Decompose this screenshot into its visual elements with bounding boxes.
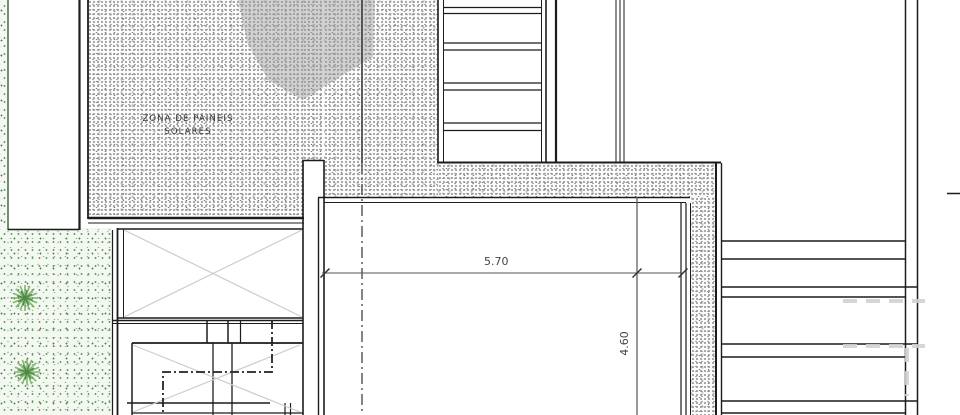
- garden-left-strip: [0, 0, 7, 228]
- site-boundary-lines: [8, 0, 80, 230]
- pool-room-walls: [318, 163, 722, 415]
- dimension-460-label: 4.60: [618, 331, 631, 356]
- gravel-roof-notch-top: [303, 0, 324, 160]
- garden-building-wall: [113, 228, 124, 415]
- solar-zone-label-line2: SOLARES: [118, 127, 258, 137]
- right-boundary-and-steps: [722, 0, 960, 415]
- stair-break-line: [163, 320, 272, 415]
- dimension-570-label: 5.70: [484, 255, 509, 268]
- void-box: [118, 229, 303, 318]
- upper-partition-walls: [556, 0, 624, 162]
- gravel-parapet-band: [438, 164, 716, 197]
- garden-area: [0, 228, 112, 415]
- floor-plan-canvas: ZONA DE PAINEIS SOLARES 5.70 4.60: [0, 0, 960, 415]
- staircase: [112, 320, 303, 415]
- dimension-lines: [321, 197, 688, 415]
- solar-zone-label-line1: ZONA DE PAINEIS: [118, 114, 258, 124]
- pergola-louvers: [438, 0, 546, 162]
- gravel-roof-solar-zone: [88, 0, 304, 218]
- watermark-dashes: [843, 301, 925, 396]
- gravel-roof-mid: [324, 0, 438, 197]
- gravel-parapet-right-strip: [691, 197, 716, 415]
